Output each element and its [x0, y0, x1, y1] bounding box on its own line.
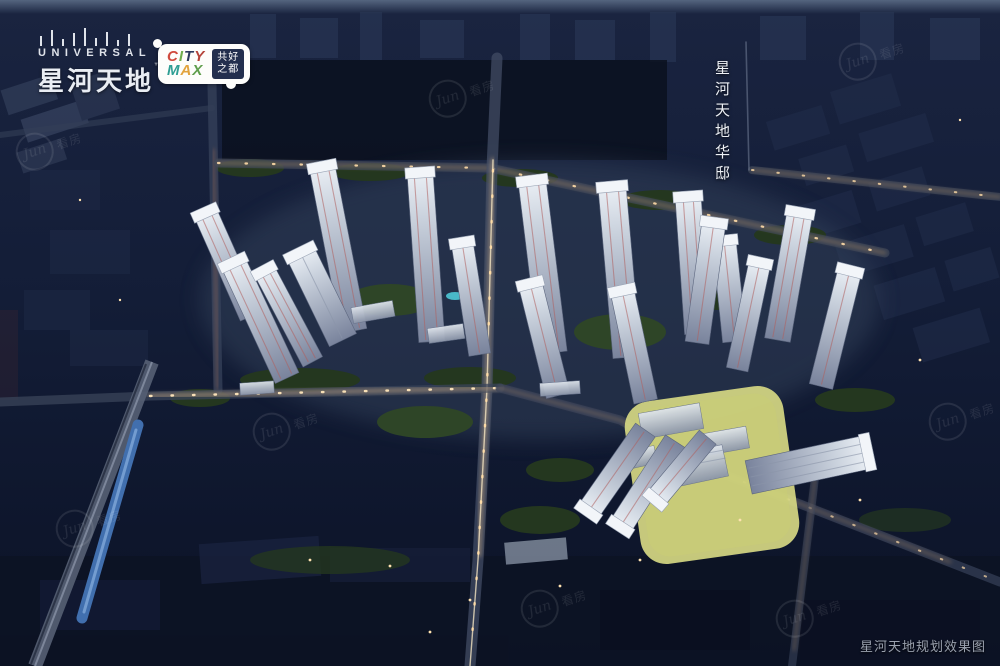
citymax-tagline: 共好 之都	[212, 49, 244, 79]
citymax-letter: X	[192, 62, 203, 79]
masterplan-artwork: .bd{fill:url(#tb);stroke:#5d677f;stroke-…	[0, 0, 1000, 666]
citymax-letter: M	[167, 62, 181, 79]
universal-logo: UNIVERSAL 星河天地™	[38, 26, 166, 98]
citymax-badge: CITY MAX 共好 之都	[158, 44, 250, 84]
citymax-letter: A	[181, 62, 193, 79]
project-vertical-label: 星河天地华邸	[711, 60, 732, 186]
universal-skyline-icon	[40, 26, 166, 46]
aerial-night-rendering: .bd{fill:url(#tb);stroke:#5d677f;stroke-…	[0, 0, 1000, 666]
universal-wordmark: UNIVERSAL	[38, 47, 166, 59]
brand-name-cn: 星河天地™	[38, 61, 166, 98]
render-caption: 星河天地规划效果图	[860, 636, 986, 655]
citymax-wordmark: CITY MAX	[167, 50, 205, 78]
